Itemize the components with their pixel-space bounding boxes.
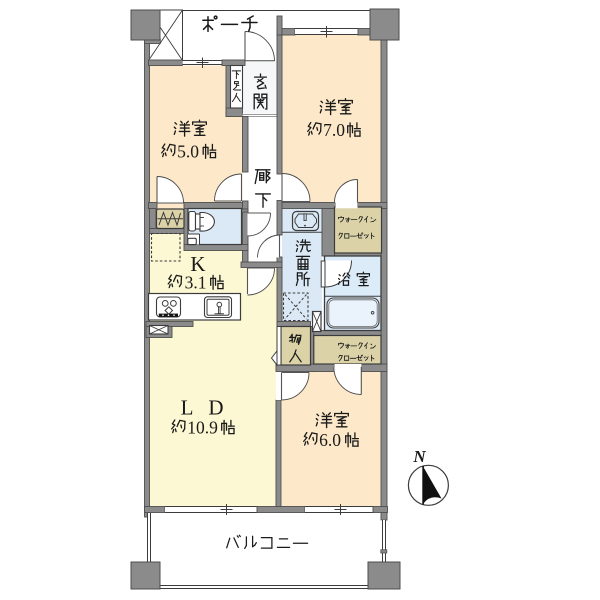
svg-text:L: L [181, 396, 194, 420]
svg-text:3.1: 3.1 [185, 273, 207, 293]
svg-text:N: N [412, 447, 426, 466]
svg-text:6.0: 6.0 [319, 430, 341, 450]
svg-text:D: D [208, 396, 223, 420]
svg-text:5.0: 5.0 [177, 142, 199, 162]
svg-text:10.9: 10.9 [187, 418, 218, 438]
svg-text:7.0: 7.0 [323, 120, 345, 140]
